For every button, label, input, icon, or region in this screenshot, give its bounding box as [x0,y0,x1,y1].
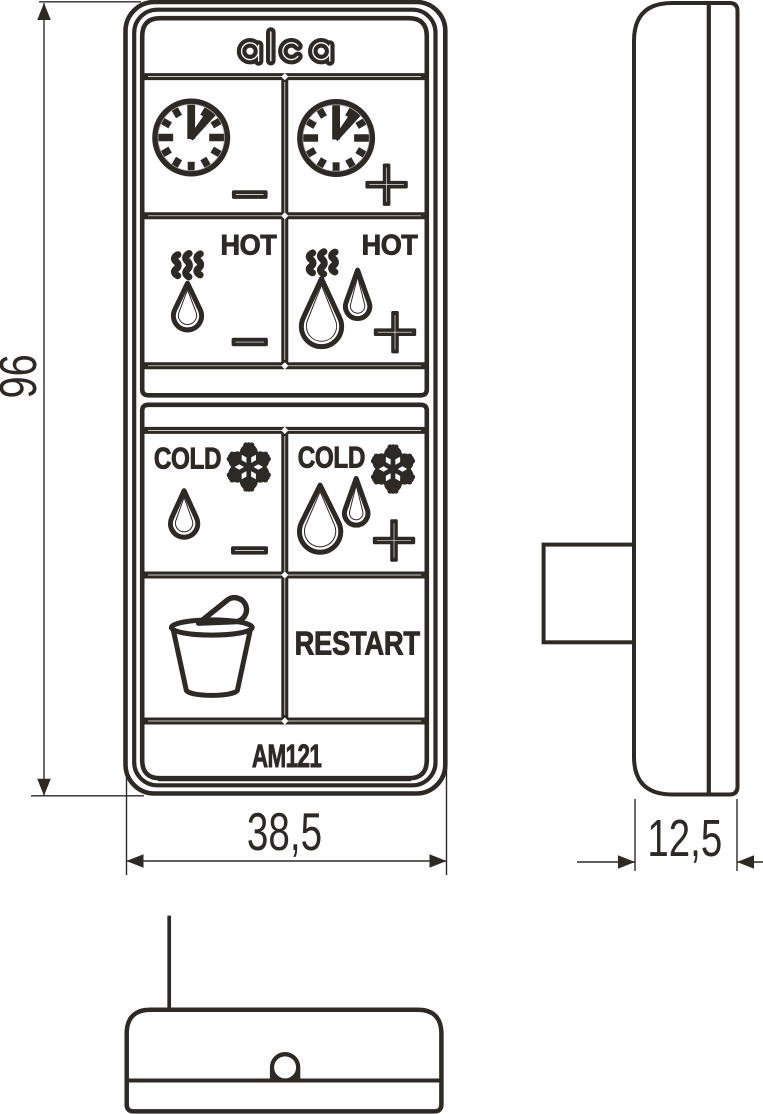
svg-text:COLD: COLD [298,441,365,474]
svg-text:RESTART: RESTART [295,626,420,663]
svg-text:AM121: AM121 [252,738,322,774]
svg-text:12,5: 12,5 [647,810,722,868]
svg-text:HOT: HOT [221,229,278,261]
svg-text:COLD: COLD [154,442,221,475]
svg-text:96: 96 [0,354,48,398]
svg-text:38,5: 38,5 [247,803,322,862]
svg-text:HOT: HOT [362,229,419,261]
